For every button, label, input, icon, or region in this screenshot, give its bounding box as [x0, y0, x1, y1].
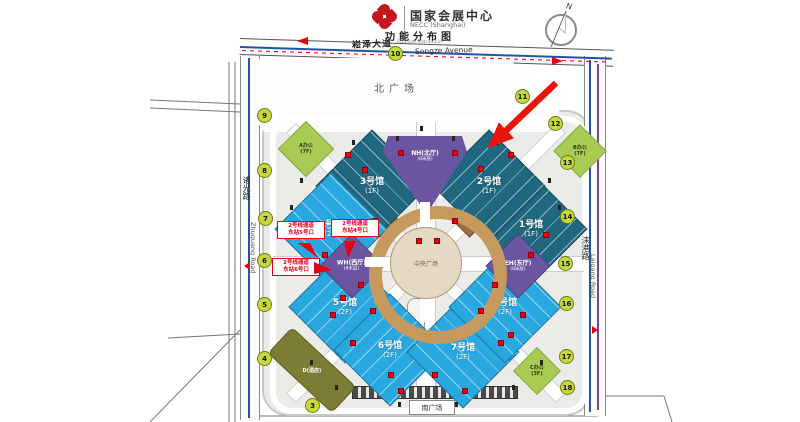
office-a-label: A办公(7F)	[299, 143, 313, 155]
gate-tick-marker	[548, 178, 551, 183]
metro-callout-exit4: 2号线通道东站4号口	[331, 219, 379, 237]
central-plaza-label: 中央广场	[414, 259, 438, 268]
necc-function-map: 1号馆(1F) 2号馆(1F) 3号馆(1F) 4号馆(2F) 5号馆(2F) …	[0, 0, 800, 422]
hall-2-label: 2号馆(1F)	[477, 177, 501, 195]
entrance-marker	[528, 252, 534, 258]
office-b-label: B办公(7F)	[573, 145, 587, 157]
entrance-marker	[362, 167, 368, 173]
entrance-marker	[388, 372, 394, 378]
gate-tick-marker	[558, 205, 561, 210]
entrance-marker	[432, 372, 438, 378]
entrance-marker	[322, 252, 328, 258]
entrance-marker	[370, 308, 376, 314]
gate-tick-marker	[352, 140, 355, 145]
gate-17: 17	[559, 349, 574, 364]
hall-7-label: 7号馆(2F)	[451, 343, 475, 361]
entrance-marker	[350, 340, 356, 346]
gate-tick-marker	[540, 360, 543, 365]
west-lobby-label: WH(西厅)(8米层)	[337, 260, 366, 273]
gate-tick-marker	[396, 136, 399, 141]
metro-callout-exit5: 2号线通道东站5号口	[277, 221, 325, 239]
zhuguang-road-label-cn: 诸光路	[241, 176, 252, 200]
central-plaza: 中央广场	[390, 227, 462, 299]
gate-tick-marker	[300, 178, 303, 183]
entrance-marker	[492, 282, 498, 288]
metro-callout-exit6: 2号线通道东站6号口	[272, 258, 320, 276]
gate-8: 8	[257, 163, 272, 178]
gate-tick-marker	[455, 402, 458, 407]
gate-11: 11	[515, 89, 530, 104]
entrance-marker	[452, 218, 458, 224]
entrance-marker	[398, 150, 404, 156]
entrance-marker	[478, 166, 484, 172]
hall-3-label: 3号馆(1F)	[360, 177, 384, 195]
hotel-d-label: D(酒店)	[303, 366, 322, 373]
gate-tick-marker	[512, 385, 515, 390]
header-divider	[404, 6, 405, 30]
south-plaza-label: 南广场	[409, 400, 455, 415]
entrance-marker	[434, 238, 440, 244]
gate-7: 7	[258, 211, 273, 226]
hall-1-label: 1号馆(1F)	[519, 220, 543, 238]
gate-18: 18	[560, 380, 575, 395]
entrance-marker	[508, 332, 514, 338]
entrance-marker	[345, 152, 351, 158]
entrance-marker	[462, 388, 468, 394]
subtitle-en: Function distribution	[384, 40, 456, 45]
gate-12: 12	[548, 116, 563, 131]
entrance-marker	[340, 295, 346, 301]
zhuguang-road-label-en: Zhuguang Road	[249, 222, 257, 274]
laigang-road-label-en: Laigang Road	[589, 254, 597, 298]
gate-14: 14	[560, 209, 575, 224]
gate-3: 3	[305, 398, 320, 413]
gate-5: 5	[257, 297, 272, 312]
entrance-marker	[478, 308, 484, 314]
gate-tick-marker	[310, 360, 313, 365]
gate-tick-marker	[398, 402, 401, 407]
gate-tick-marker	[290, 205, 293, 210]
gate-13: 13	[560, 155, 575, 170]
entrance-marker	[498, 340, 504, 346]
office-c-label: C办公(3F)	[530, 365, 544, 377]
hall-6-label: 6号馆(2F)	[378, 341, 402, 359]
entrance-marker	[508, 152, 514, 158]
gate-tick-marker	[452, 136, 455, 141]
entrance-marker	[416, 238, 422, 244]
gate-16: 16	[559, 296, 574, 311]
entrance-marker	[330, 312, 336, 318]
gate-4: 4	[257, 351, 272, 366]
necc-logo	[372, 4, 398, 30]
entrance-marker	[358, 282, 364, 288]
east-lobby-label: EH(东厅)(8米层)	[505, 260, 532, 273]
entrance-marker	[520, 312, 526, 318]
gate-6: 6	[257, 253, 272, 268]
transit-line-right	[597, 64, 599, 410]
entrance-marker	[543, 232, 549, 238]
gate-9: 9	[257, 108, 272, 123]
gate-15: 15	[558, 256, 573, 271]
entrance-marker	[452, 150, 458, 156]
north-plaza-label: 北广场	[374, 80, 419, 95]
gate-10: 10	[388, 46, 403, 61]
gate-tick-marker	[335, 385, 338, 390]
gate-tick-marker	[496, 140, 499, 145]
entrance-marker	[398, 388, 404, 394]
gate-tick-marker	[420, 126, 423, 131]
